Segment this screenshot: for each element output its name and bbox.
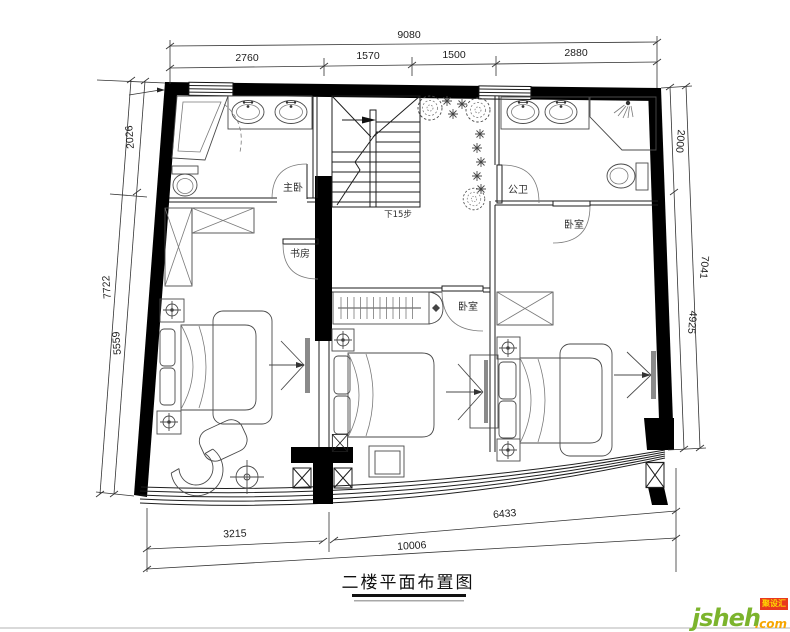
page-title: 二楼平面布置图 [342, 573, 475, 592]
master-bedroom [157, 208, 310, 505]
shower-enclosure [172, 96, 241, 160]
sink-icon [545, 101, 577, 124]
dim-left-lower: 5559 [110, 331, 124, 355]
sink-icon [507, 101, 539, 124]
lamp-icon [160, 413, 178, 431]
hanger-wardrobe [333, 292, 443, 324]
title-underline [352, 594, 466, 597]
dim-bottom-left: 3215 [223, 527, 247, 540]
room-label-bedroom-mid: 卧室 [458, 300, 478, 313]
bed [334, 353, 434, 437]
stairs: 下15步 [332, 96, 420, 220]
column [334, 468, 352, 488]
bedroom-middle [332, 292, 498, 477]
dim-top-seg1: 2760 [235, 52, 259, 64]
top-wall [165, 82, 661, 101]
dim-bottom-right: 6433 [493, 507, 517, 521]
dim-left-upper: 2026 [123, 125, 137, 149]
dim-top-total: 9080 [397, 29, 421, 41]
plant-icon [466, 98, 490, 122]
tv-icon [614, 351, 656, 399]
window-top-left [189, 82, 233, 96]
curved-window-wall [140, 450, 665, 505]
wardrobe [165, 208, 254, 286]
dim-right-upper: 2000 [673, 129, 687, 153]
toilet-icon [607, 163, 648, 190]
watermark-brand: jsheh [692, 604, 760, 632]
dim-bottom-total: 10006 [397, 539, 427, 553]
plant-icon [418, 96, 442, 120]
outer-walls [134, 82, 674, 497]
column [293, 468, 311, 488]
dimension-bottom: 3215 6433 10006 [143, 468, 680, 572]
dim-top-seg2: 1570 [356, 50, 380, 62]
stairs-note-label: 下15步 [384, 210, 412, 220]
center-wall [315, 176, 332, 341]
watermark-suffix: .com [755, 617, 787, 631]
toilet-icon [172, 166, 198, 196]
floor-plan-canvas: 下15步 [0, 0, 790, 632]
lamp-icon [499, 441, 517, 459]
bedroom-right [497, 292, 656, 461]
room-label-study: 书房 [290, 247, 310, 260]
shower-head-icon [614, 101, 633, 118]
bed [160, 311, 272, 424]
tv-icon [269, 338, 310, 393]
drawing-title: 二楼平面布置图 [342, 573, 475, 602]
lamp-icon [163, 301, 181, 319]
door-public-bath [497, 165, 539, 203]
watermark: jsheh .com 聚设汇 [692, 598, 788, 631]
lamp-icon [499, 339, 517, 357]
sink-icon [275, 101, 307, 124]
public-bathroom [501, 97, 656, 190]
stair-direction-arrow [362, 117, 376, 124]
room-label-bedroom-right: 卧室 [564, 218, 584, 231]
plants [418, 96, 490, 210]
wardrobe [497, 292, 553, 325]
master-bathroom [172, 96, 312, 196]
shower-enclosure [590, 97, 656, 150]
room-label-master-bedroom: 主卧 [283, 181, 303, 194]
dim-right-lower: 4925 [685, 310, 699, 334]
sink-icon [232, 101, 264, 124]
title-underline-2 [354, 600, 464, 602]
vanity-counter [228, 96, 312, 129]
dim-top-seg4: 2880 [564, 47, 588, 59]
lamp-icon [334, 331, 352, 349]
desk [369, 446, 404, 477]
dim-left-total: 7722 [100, 275, 114, 299]
room-label-public-bath: 公卫 [508, 185, 528, 196]
interior-walls [169, 96, 674, 505]
leader-arrow [157, 88, 165, 93]
plant-icon [463, 188, 485, 210]
dim-top-seg3: 1500 [442, 49, 466, 61]
column [646, 463, 664, 488]
dim-right-total: 7041 [697, 255, 711, 279]
watermark-badge: 聚设汇 [760, 598, 788, 610]
